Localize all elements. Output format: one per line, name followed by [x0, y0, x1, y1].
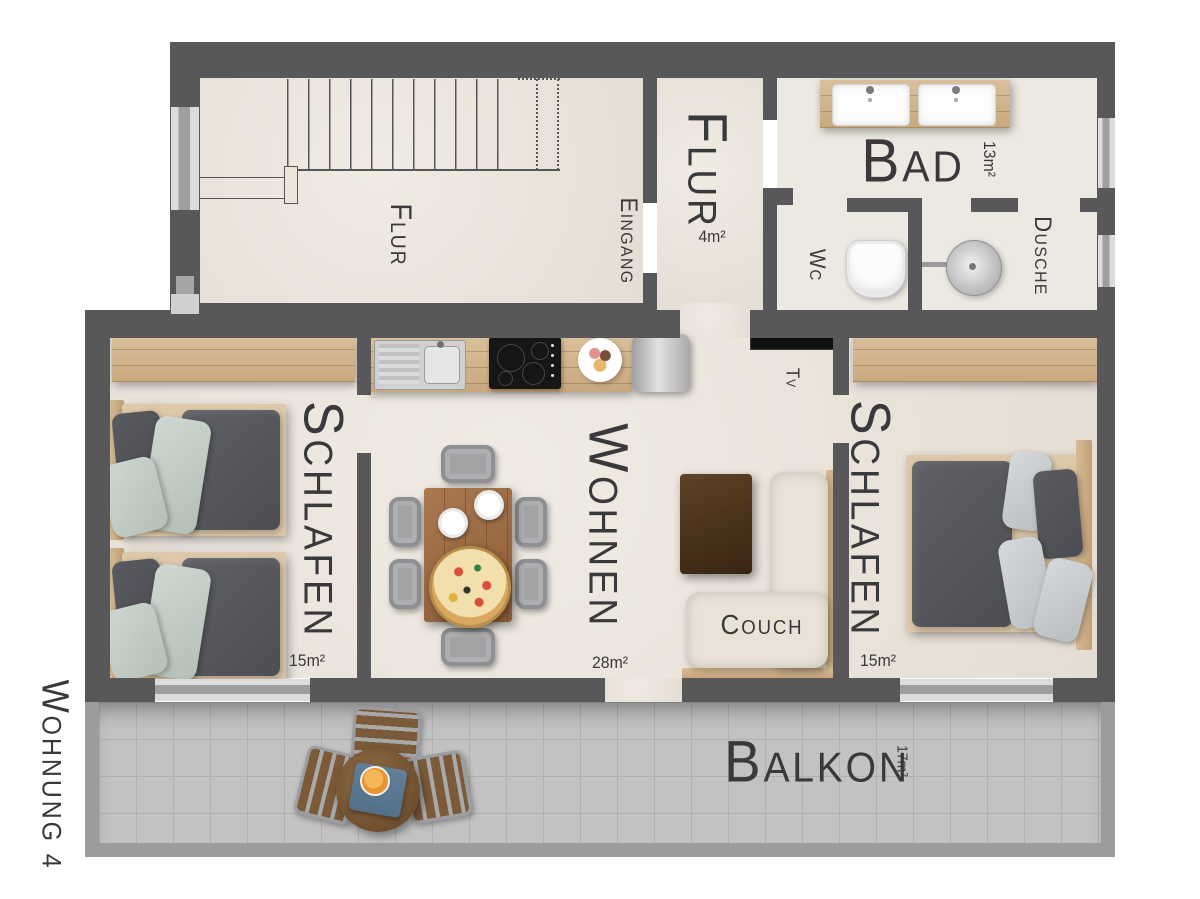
balcony-railing-bottom [85, 843, 1115, 857]
wall-bedroom-left-a [357, 338, 371, 395]
wall-bottom-4 [1053, 678, 1115, 702]
hallway-door-opening [680, 303, 750, 338]
shower-drain-icon [969, 263, 976, 270]
kitchen-bin [632, 334, 690, 392]
cooktop-controls [551, 344, 554, 347]
plate-icon-1 [438, 508, 468, 538]
wall-bottom-2 [310, 678, 605, 702]
hallway-area-label: 4m² [698, 227, 725, 247]
cooktop-burner-2 [531, 342, 549, 360]
window-bath-right-2 [1098, 235, 1115, 287]
stairwell-door-sill [171, 294, 199, 314]
living-room-label: WOHNEN [577, 423, 642, 629]
stairs-dashed-top [518, 78, 560, 80]
cooktop-burner-3 [498, 371, 513, 386]
cooktop-burner-4 [522, 362, 545, 385]
wall-bottom-3 [682, 678, 900, 702]
shower-label: DUSCHE [1028, 216, 1056, 296]
bedroom-right-label: SCHLAFEN [839, 400, 904, 638]
toilet-icon [846, 240, 906, 298]
balcony-door-opening [605, 678, 682, 702]
dining-chair-top [441, 445, 495, 483]
floor-plan: WOHNUNG 4 FLUR EINGANG FLUR 4m² BAD 13m²… [0, 0, 1200, 899]
plate-icon-2 [474, 490, 504, 520]
balcony-area-label: 17m² [894, 745, 911, 777]
entrance-label: EINGANG [614, 198, 642, 285]
wall-wc-a [847, 198, 922, 212]
kitchen-drainboard-icon [379, 344, 419, 384]
wall-entrance-a [643, 78, 657, 203]
balcony-railing-left [85, 702, 99, 857]
food-plate-icon [578, 338, 622, 382]
balcony-label: BALKON [724, 729, 910, 796]
hallway-label: FLUR [676, 111, 741, 228]
bathroom-label: BAD [861, 126, 964, 197]
tv [750, 336, 839, 350]
wall-mid-left [85, 310, 110, 700]
stairs-dashed-step-2 [557, 79, 559, 170]
wall-bedroom-right-a [833, 338, 849, 395]
living-room-area-label: 28m² [592, 653, 628, 673]
wall-mid-right [1097, 310, 1115, 700]
window-bedroom-left [155, 679, 310, 701]
faucet-right-icon [952, 86, 960, 94]
window-bath-right-1 [1098, 118, 1115, 188]
stairs-landing [198, 177, 294, 199]
dining-chair-left-2 [389, 559, 421, 609]
wall-bottom-1 [85, 678, 155, 702]
wall-bedroom-left-b [357, 453, 371, 678]
pizza-icon [429, 546, 511, 628]
bathroom-area-label: 13m² [979, 141, 999, 177]
kitchen-basin-icon [424, 346, 460, 384]
coffee-table [680, 474, 752, 574]
double-bed-duvet [912, 461, 1012, 627]
stairwell-label: FLUR [383, 203, 417, 266]
wall-top [170, 42, 1115, 78]
bedroom-left-label: SCHLAFEN [292, 401, 357, 639]
stairs-dashed-step-1 [536, 79, 538, 170]
wall-hall-bath-a [763, 78, 777, 120]
balcony-floor [99, 702, 1101, 843]
wall-mid-top-left [85, 310, 680, 338]
window-bedroom-right [900, 679, 1053, 701]
wall-wc-c [1080, 198, 1097, 212]
stairs-rail [287, 169, 560, 171]
window-stairwell-left [171, 107, 199, 210]
kitchen-faucet-icon [437, 341, 444, 348]
dining-chair-left-1 [389, 497, 421, 547]
cooktop-burner-1 [497, 344, 525, 372]
wc-label: WC [804, 249, 830, 281]
bedroom-left-area-label: 15m² [289, 651, 325, 671]
faucet-left-icon [866, 86, 874, 94]
tv-label: TV [782, 368, 803, 388]
balcony-railing-right [1101, 702, 1115, 857]
drink-icon [360, 766, 390, 796]
wall-hall-bath-stub [777, 188, 793, 205]
wardrobe-left [112, 334, 355, 382]
bedroom-right-area-label: 15m² [860, 651, 896, 671]
wall-mid-top-right [750, 310, 1115, 338]
stairs-steps [287, 79, 518, 170]
wall-hall-bath-b [763, 188, 777, 312]
dining-chair-right-1 [515, 497, 547, 547]
wall-entrance-b [643, 273, 657, 303]
stairs-newel-post [284, 166, 298, 204]
dining-chair-bottom [441, 628, 495, 666]
wall-wc-b [971, 198, 1018, 212]
wall-wc-divider [908, 212, 922, 312]
wardrobe-right [853, 334, 1097, 382]
apartment-label: WOHNUNG 4 [33, 680, 76, 871]
dining-chair-right-2 [515, 559, 547, 609]
couch-label: COUCH [721, 609, 804, 641]
